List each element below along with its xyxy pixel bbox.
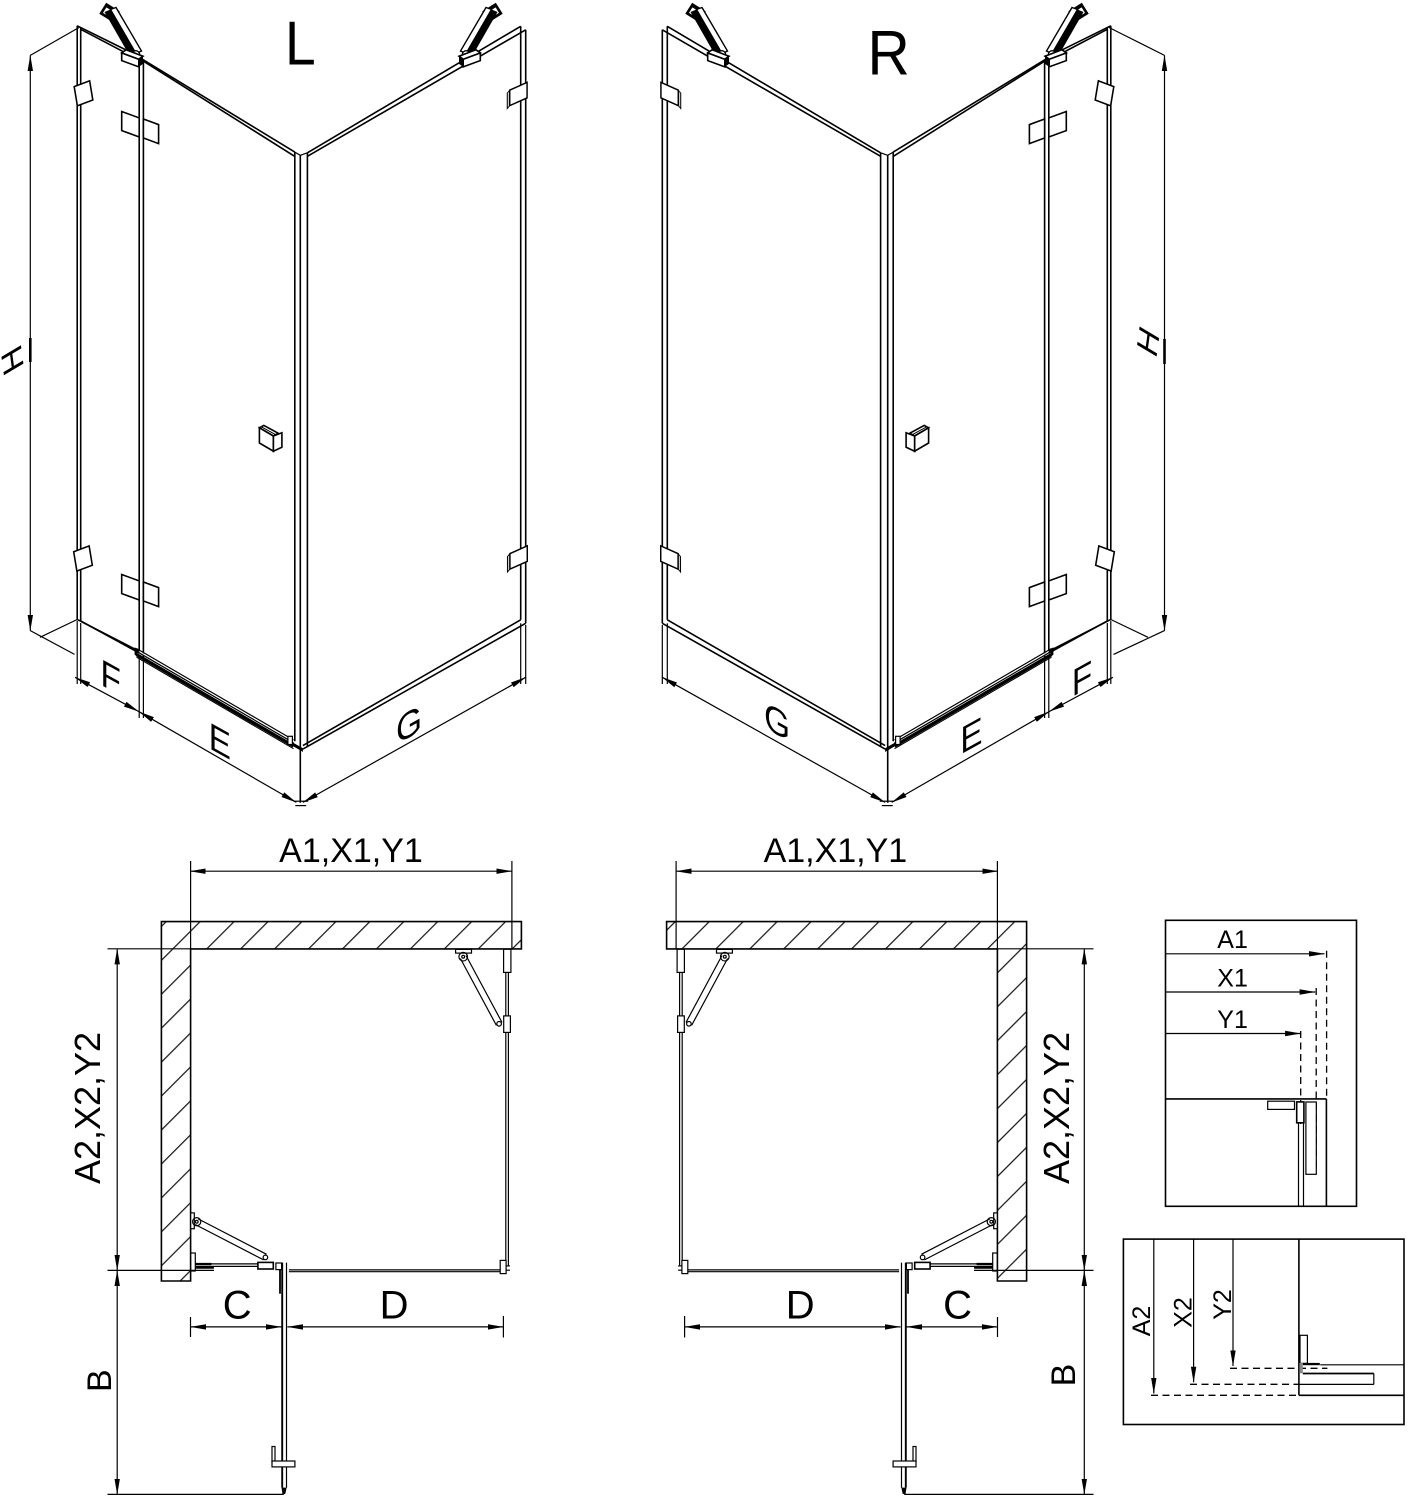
svg-text:A2,X2,Y2: A2,X2,Y2 bbox=[67, 1032, 108, 1184]
svg-text:Y1: Y1 bbox=[1217, 1006, 1248, 1034]
svg-text:C: C bbox=[223, 1283, 252, 1327]
svg-text:B: B bbox=[81, 1369, 119, 1392]
svg-text:R: R bbox=[868, 18, 910, 88]
svg-text:D: D bbox=[786, 1283, 815, 1327]
svg-text:X2: X2 bbox=[1170, 1297, 1198, 1328]
svg-text:X1: X1 bbox=[1217, 964, 1248, 992]
svg-text:A2,X2,Y2: A2,X2,Y2 bbox=[1036, 1032, 1077, 1184]
svg-text:A1: A1 bbox=[1217, 926, 1248, 954]
svg-text:A1,X1,Y1: A1,X1,Y1 bbox=[764, 832, 908, 870]
svg-text:C: C bbox=[943, 1283, 972, 1327]
svg-text:B: B bbox=[1045, 1364, 1083, 1387]
svg-text:Y2: Y2 bbox=[1209, 1289, 1237, 1320]
svg-text:L: L bbox=[285, 10, 316, 79]
svg-text:A2: A2 bbox=[1128, 1306, 1156, 1337]
svg-text:D: D bbox=[380, 1283, 409, 1327]
svg-text:A1,X1,Y1: A1,X1,Y1 bbox=[279, 832, 423, 870]
